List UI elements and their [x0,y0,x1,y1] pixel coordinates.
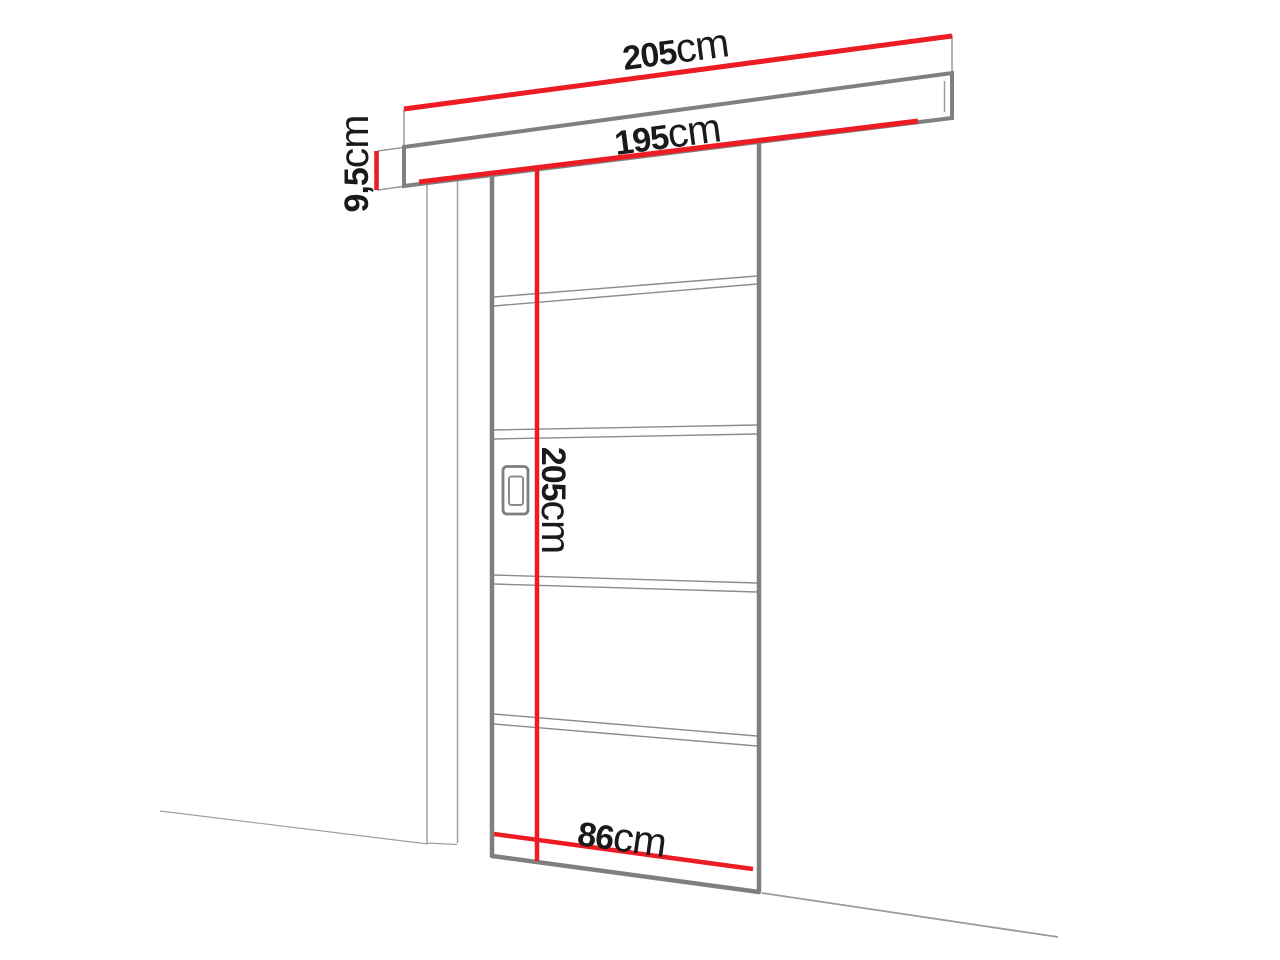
track-end-cap [378,147,406,190]
door-width-unit: cm [610,813,669,866]
track-height-unit: cm [331,116,377,169]
floor-line-right [762,893,1058,937]
door-width-value: 86 [575,815,616,858]
sliding-door-diagram: 205cm 195cm 9,5cm 205cm 86cm [0,0,1280,960]
door-handle-outer [503,467,528,515]
door-panel [492,139,759,892]
door-height-label: 205cm [533,447,579,553]
door-handle [503,467,528,515]
track-height-label: 9,5cm [331,116,377,213]
wall-post [427,176,458,843]
track-length-value: 205 [620,33,678,78]
pass-width-unit: cm [665,104,723,156]
track-length-unit: cm [673,19,731,71]
track-height-value: 9,5 [338,168,376,212]
pass-width-value: 195 [612,118,670,163]
floor-line-left [160,811,428,844]
door [492,139,759,892]
diagram-stage: 205cm 195cm 9,5cm 205cm 86cm [0,0,1280,960]
door-height-value: 205 [534,447,572,501]
wall-post-base-line [427,843,457,845]
door-height-unit: cm [533,501,579,554]
